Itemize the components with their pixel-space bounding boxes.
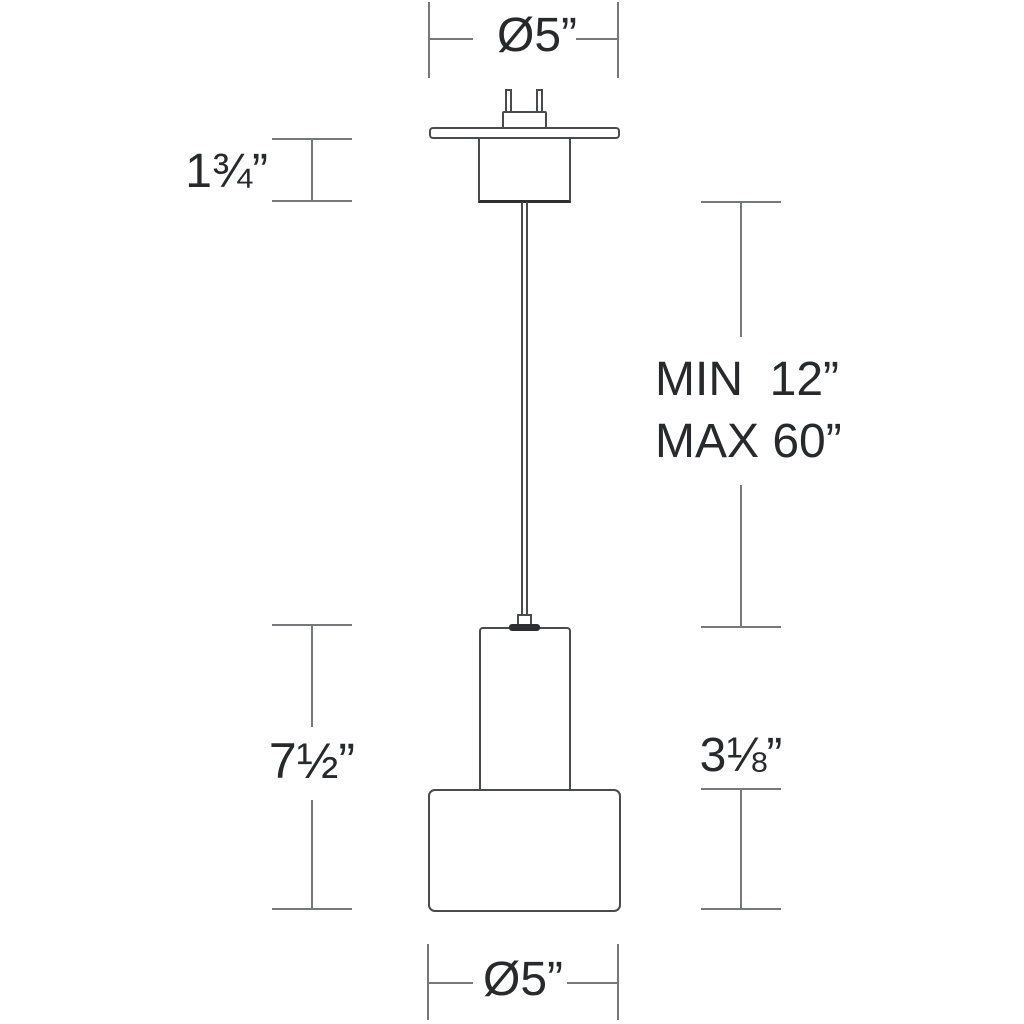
shade-height-tick-bottom <box>701 908 781 910</box>
canopy-height-label: 1¾” <box>150 144 268 199</box>
canopy-diameter-label: Ø5” <box>471 8 603 63</box>
cord-flange <box>509 624 540 631</box>
suspension-dim-line-lower <box>740 485 742 627</box>
top-dim-extension-left <box>428 2 430 78</box>
suspension-max-label: MAX 60” <box>655 414 855 469</box>
fixture-height-dim-line-upper <box>311 624 313 727</box>
top-dim-line-left <box>428 38 473 40</box>
dimension-drawing: Ø5” 1¾” MIN 12” MAX 60” 7½” 3⅛” Ø5” <box>0 0 1024 1024</box>
shade-height-label: 3⅛” <box>666 728 816 783</box>
fixture-stem-cylinder <box>479 627 571 791</box>
fixture-height-label: 7½” <box>237 733 387 791</box>
cord-line-right <box>526 202 528 615</box>
top-dim-extension-right <box>617 2 619 78</box>
canopy-body <box>478 137 571 203</box>
shade-height-dim-line <box>740 788 742 910</box>
canopy-height-dim-line <box>311 138 313 202</box>
shade-diameter-label: Ø5” <box>457 952 589 1007</box>
fixture-height-tick-bottom <box>272 908 352 910</box>
fixture-drum-shade <box>428 789 621 912</box>
fixture-height-dim-line-lower <box>311 800 313 910</box>
suspension-tick-bottom <box>701 626 781 628</box>
cord-line-left <box>521 202 523 615</box>
suspension-min-label: MIN 12” <box>655 352 855 407</box>
canopy-plate <box>429 127 620 139</box>
suspension-dim-line-upper <box>740 201 742 337</box>
